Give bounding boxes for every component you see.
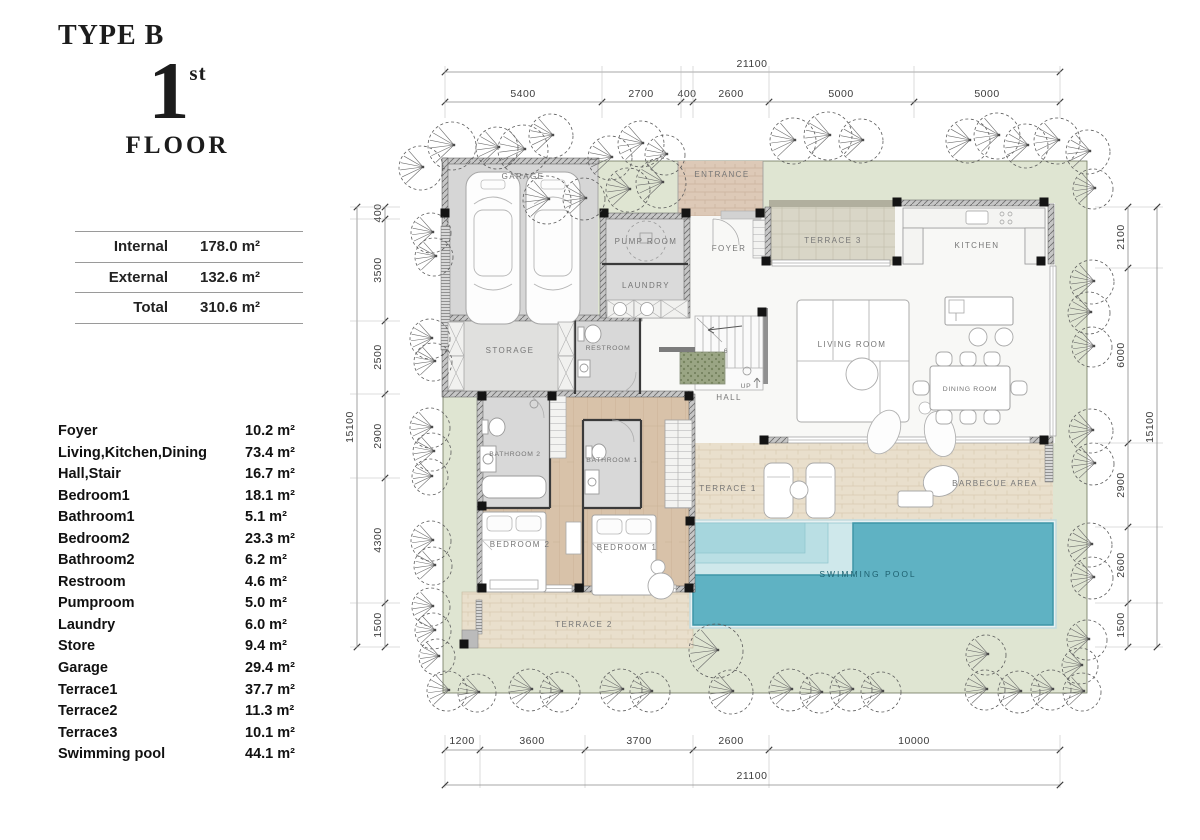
tree-icon — [529, 114, 573, 158]
dim-label: 400 — [677, 88, 696, 100]
room-label-hall: HALL — [716, 393, 742, 402]
dim-left-total: 15100 — [344, 411, 356, 443]
dim-label: 2900 — [372, 423, 384, 448]
column-icon — [762, 257, 771, 266]
chair-icon — [936, 410, 952, 424]
hall-bench — [659, 347, 695, 352]
beanbag-icon — [648, 573, 674, 599]
tree-icon — [946, 119, 990, 163]
column-icon — [893, 198, 902, 207]
column-icon — [756, 209, 765, 218]
floorplan-page: TYPE B 1st FLOOR Internal 178.0 m² Exter… — [0, 0, 1200, 840]
pool-step — [693, 523, 805, 553]
room-label-bathroom2: BATHROOM 2 — [489, 451, 540, 458]
room-label-pump: PUMP ROOM — [615, 237, 678, 246]
dim-label: 1500 — [372, 612, 384, 637]
chair-icon — [960, 410, 976, 424]
dim-label: 1500 — [1115, 612, 1127, 637]
column-icon — [760, 436, 769, 445]
dim-label: 400 — [372, 203, 384, 222]
room-label-laundry: LAUNDRY — [622, 281, 670, 290]
room-label-restroom: RESTROOM — [586, 345, 631, 352]
dim-right-total: 15100 — [1144, 411, 1156, 443]
wardrobe-icon — [665, 420, 692, 508]
lounger-icon — [806, 463, 835, 518]
dim-label: 2500 — [372, 344, 384, 369]
dim-label: 3600 — [519, 735, 544, 747]
washer-icon — [614, 303, 627, 316]
washer-icon — [641, 303, 654, 316]
column-icon — [478, 584, 487, 593]
dim-label: 2100 — [1115, 224, 1127, 249]
dim-label: 5000 — [974, 88, 999, 100]
room-label-barbecue: BARBECUE AREA — [952, 479, 1038, 488]
terrace3-wall — [769, 200, 895, 207]
dim-label: 1200 — [449, 735, 474, 747]
car-icon — [526, 172, 580, 324]
column-icon — [686, 517, 695, 526]
sink-icon — [966, 211, 988, 224]
chair-icon — [960, 352, 976, 366]
tree-icon — [839, 119, 883, 163]
bed-icon — [592, 515, 656, 595]
dim-label: 2600 — [1115, 552, 1127, 577]
column-icon — [460, 640, 469, 649]
chair-icon — [913, 381, 929, 395]
room-label-terrace1: TERRACE 1 — [699, 484, 757, 493]
dim-label: 10000 — [898, 735, 930, 747]
column-icon — [1040, 198, 1049, 207]
column-icon — [1040, 436, 1049, 445]
door-mat — [721, 211, 761, 219]
dim-label: 3500 — [372, 257, 384, 282]
lounger-icon — [764, 463, 793, 518]
room-label-pool: SWIMMING POOL — [819, 569, 916, 579]
dim-label: 5400 — [510, 88, 535, 100]
tree-icon — [1066, 130, 1110, 174]
dim-label: 2900 — [1115, 472, 1127, 497]
dim-label: 6000 — [1115, 342, 1127, 367]
room-label-entrance: ENTRANCE — [694, 170, 749, 179]
room-restroom — [575, 318, 640, 394]
room-label-terrace2: TERRACE 2 — [555, 620, 613, 629]
dim-label: 2700 — [628, 88, 653, 100]
dim-label: 5000 — [828, 88, 853, 100]
column-icon — [441, 209, 450, 218]
chair-icon — [1011, 381, 1027, 395]
chair-icon — [936, 352, 952, 366]
tree-icon — [399, 146, 443, 190]
column-icon — [1037, 257, 1046, 266]
tree-icon — [618, 121, 664, 167]
room-label-dining: DINING ROOM — [943, 386, 998, 393]
cabinet-icon — [558, 356, 574, 390]
stair-up-label: UP — [741, 383, 752, 390]
room-label-bedroom1: BEDROOM 1 — [597, 543, 658, 552]
room-label-terrace3: TERRACE 3 — [804, 236, 862, 245]
dim-top-total: 21100 — [737, 58, 768, 70]
floor-plan-svg: GARAGE PUMP ROOM LAUNDRY ENTRANCE FOYER … — [0, 0, 1200, 840]
cabinet-icon — [448, 356, 464, 390]
chair-icon — [984, 410, 1000, 424]
column-icon — [893, 257, 902, 266]
column-icon — [548, 392, 557, 401]
cabinet-icon — [661, 300, 688, 318]
room-storage — [445, 318, 575, 394]
room-terrace3 — [769, 203, 895, 265]
bench-icon — [898, 491, 933, 507]
column-icon — [682, 209, 691, 218]
planter-icon — [680, 352, 725, 384]
room-label-living: LIVING ROOM — [818, 340, 887, 349]
column-icon — [758, 308, 767, 317]
tree-icon — [804, 112, 852, 160]
cabinet-icon — [558, 322, 574, 356]
tree-icon — [770, 118, 816, 164]
stair-step-count: 6 — [724, 348, 728, 355]
side-fence — [1045, 444, 1053, 482]
stool-icon — [995, 328, 1013, 346]
coffee-table-icon — [846, 358, 878, 390]
room-label-bathroom1: BATHROOM 1 — [586, 457, 637, 464]
dresser-icon — [566, 522, 581, 554]
car-icon — [466, 172, 520, 324]
dim-label: 4300 — [372, 527, 384, 552]
column-icon — [685, 392, 694, 401]
room-label-kitchen: KITCHEN — [955, 241, 1000, 250]
stool-icon — [969, 328, 987, 346]
chair-icon — [984, 352, 1000, 366]
column-icon — [685, 584, 694, 593]
room-label-storage: STORAGE — [486, 346, 535, 355]
foyer-closet — [753, 220, 765, 258]
column-icon — [478, 392, 487, 401]
column-icon — [600, 209, 609, 218]
side-table-icon — [790, 481, 808, 499]
column-icon — [575, 584, 584, 593]
room-label-bedroom2: BEDROOM 2 — [490, 540, 551, 549]
dim-bottom-total: 21100 — [737, 770, 768, 782]
dim-label: 3700 — [626, 735, 651, 747]
dim-label: 2600 — [718, 88, 743, 100]
column-icon — [478, 502, 487, 511]
room-label-foyer: FOYER — [712, 244, 747, 253]
dim-label: 2600 — [718, 735, 743, 747]
side-fence — [476, 600, 482, 634]
room-label-garage: GARAGE — [502, 172, 545, 181]
wardrobe-icon — [550, 396, 566, 458]
bed-bench — [490, 580, 538, 589]
